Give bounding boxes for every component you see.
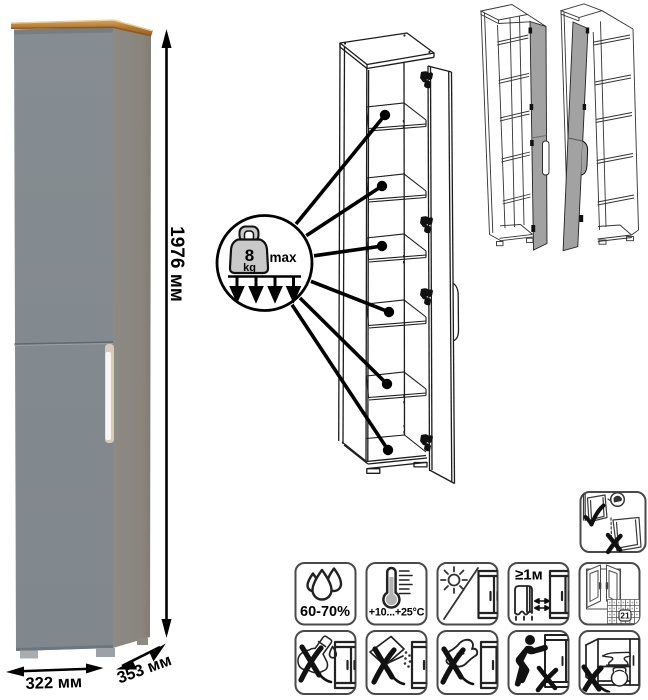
svg-text:+10...+25°C: +10...+25°C [369, 607, 425, 619]
svg-text:max: max [269, 250, 297, 265]
svg-text:60-70%: 60-70% [300, 604, 350, 620]
svg-text:322 мм: 322 мм [25, 673, 82, 693]
svg-text:353 мм: 353 мм [115, 651, 174, 687]
svg-text:≥1м: ≥1м [515, 567, 543, 584]
svg-text:kg: kg [243, 262, 256, 274]
svg-text:21: 21 [620, 611, 630, 621]
svg-text:1976 мм: 1976 мм [166, 226, 187, 302]
